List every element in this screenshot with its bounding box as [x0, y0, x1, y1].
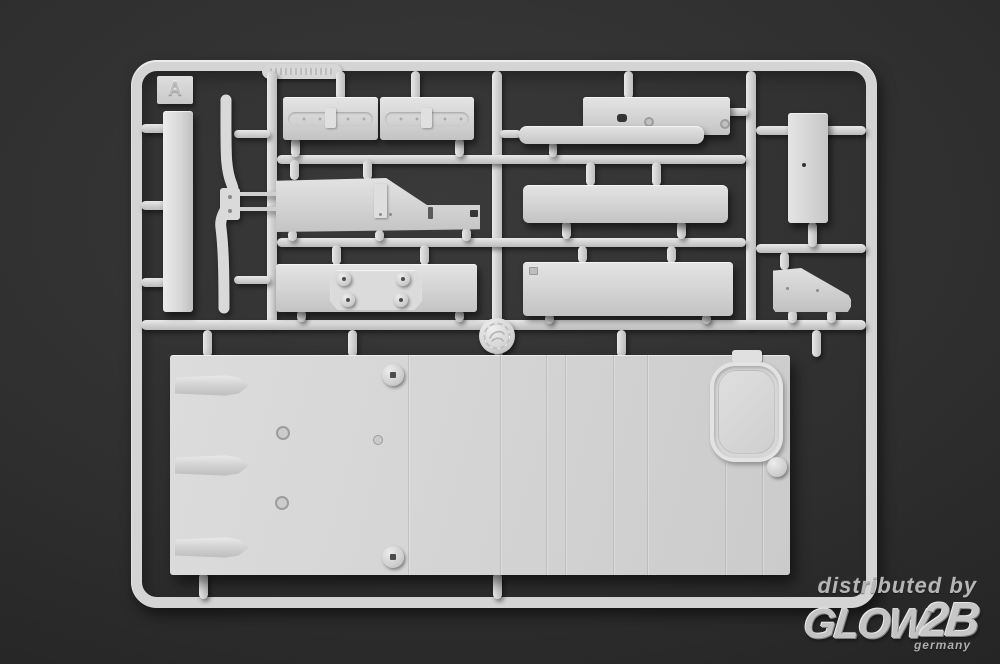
pointed-ridge: [175, 537, 249, 558]
watermark: distributed by GLOW 2B germany: [804, 573, 977, 652]
pin-hole: [802, 163, 806, 167]
part-vertical-plank: [163, 111, 193, 312]
stub: [375, 230, 384, 241]
small-hole: [275, 496, 289, 510]
runner-vertical-center: [492, 71, 502, 323]
stub: [617, 330, 626, 357]
stub: [549, 142, 557, 157]
stub: [500, 130, 521, 138]
stub: [203, 330, 212, 357]
part-deck-plate: [170, 355, 790, 575]
panel-line-short: [725, 462, 727, 575]
rivet-dot: [389, 213, 392, 216]
hatch-inner-panel: [718, 370, 775, 454]
pointed-ridge: [175, 375, 249, 396]
rivet-dot: [816, 289, 819, 292]
stub: [624, 71, 633, 99]
part-plain-bar-upper: [523, 185, 728, 223]
clasp-detail: [325, 108, 336, 128]
clasp-detail: [421, 108, 432, 128]
rivet-dot: [379, 213, 382, 216]
stub: [462, 228, 471, 241]
panel-line: [546, 355, 548, 575]
brand-glow-text: GLOW: [802, 606, 928, 642]
slot-detail: [428, 207, 433, 219]
stub: [578, 246, 587, 263]
brand-2b-text: 2B: [919, 601, 979, 642]
part-mount-plate: [276, 264, 477, 312]
oval-hatch: [710, 362, 783, 462]
stub: [652, 162, 661, 186]
stub: [586, 162, 595, 186]
stub: [199, 573, 208, 599]
round-boss: [337, 272, 351, 286]
small-hole: [276, 426, 290, 440]
pointed-ridge: [175, 455, 249, 476]
screw-boss: [382, 364, 404, 386]
corner-notch: [529, 267, 538, 275]
round-hole: [720, 119, 730, 129]
stub: [455, 138, 464, 157]
stub: [808, 222, 817, 247]
small-hole: [373, 435, 383, 445]
part-plain-bar-lower: [523, 262, 733, 316]
watermark-brand-logo: GLOW 2B: [802, 601, 979, 642]
panel-line: [613, 355, 615, 575]
panel-line: [500, 355, 502, 575]
stub: [420, 245, 429, 265]
part-skirt-left: [283, 97, 378, 140]
round-boss: [396, 272, 410, 286]
part-right-panel: [788, 113, 828, 223]
sprue-letter: A: [168, 79, 182, 101]
stub: [812, 330, 821, 357]
part-skirt-right: [380, 97, 474, 140]
panel-line: [408, 355, 410, 575]
rivet-dot: [786, 287, 789, 290]
square-hole: [470, 210, 478, 217]
round-boss: [767, 457, 787, 477]
panel-line: [565, 355, 567, 575]
part-stepped-beam-lower: [519, 126, 704, 144]
screw-boss: [382, 546, 404, 568]
stub: [493, 573, 502, 599]
panel-line: [647, 355, 649, 575]
stub: [363, 160, 372, 180]
runner-crossrail-1: [277, 155, 746, 164]
embossed-code-texture: [270, 68, 332, 75]
stub: [667, 246, 676, 263]
runner-crossrail-2: [277, 238, 746, 247]
stub: [562, 221, 571, 239]
photo-scene: A: [0, 0, 1000, 664]
medallion-emboss: [479, 318, 515, 354]
brand-medallion-icon: [479, 318, 515, 354]
stub: [780, 252, 789, 270]
round-boss: [341, 293, 355, 307]
stub: [336, 71, 345, 100]
sprue-letter-tab: A: [157, 76, 193, 104]
slot-hole: [617, 114, 627, 122]
stub: [677, 221, 686, 239]
round-boss: [394, 293, 408, 307]
stub: [348, 330, 357, 357]
stub: [411, 71, 420, 100]
